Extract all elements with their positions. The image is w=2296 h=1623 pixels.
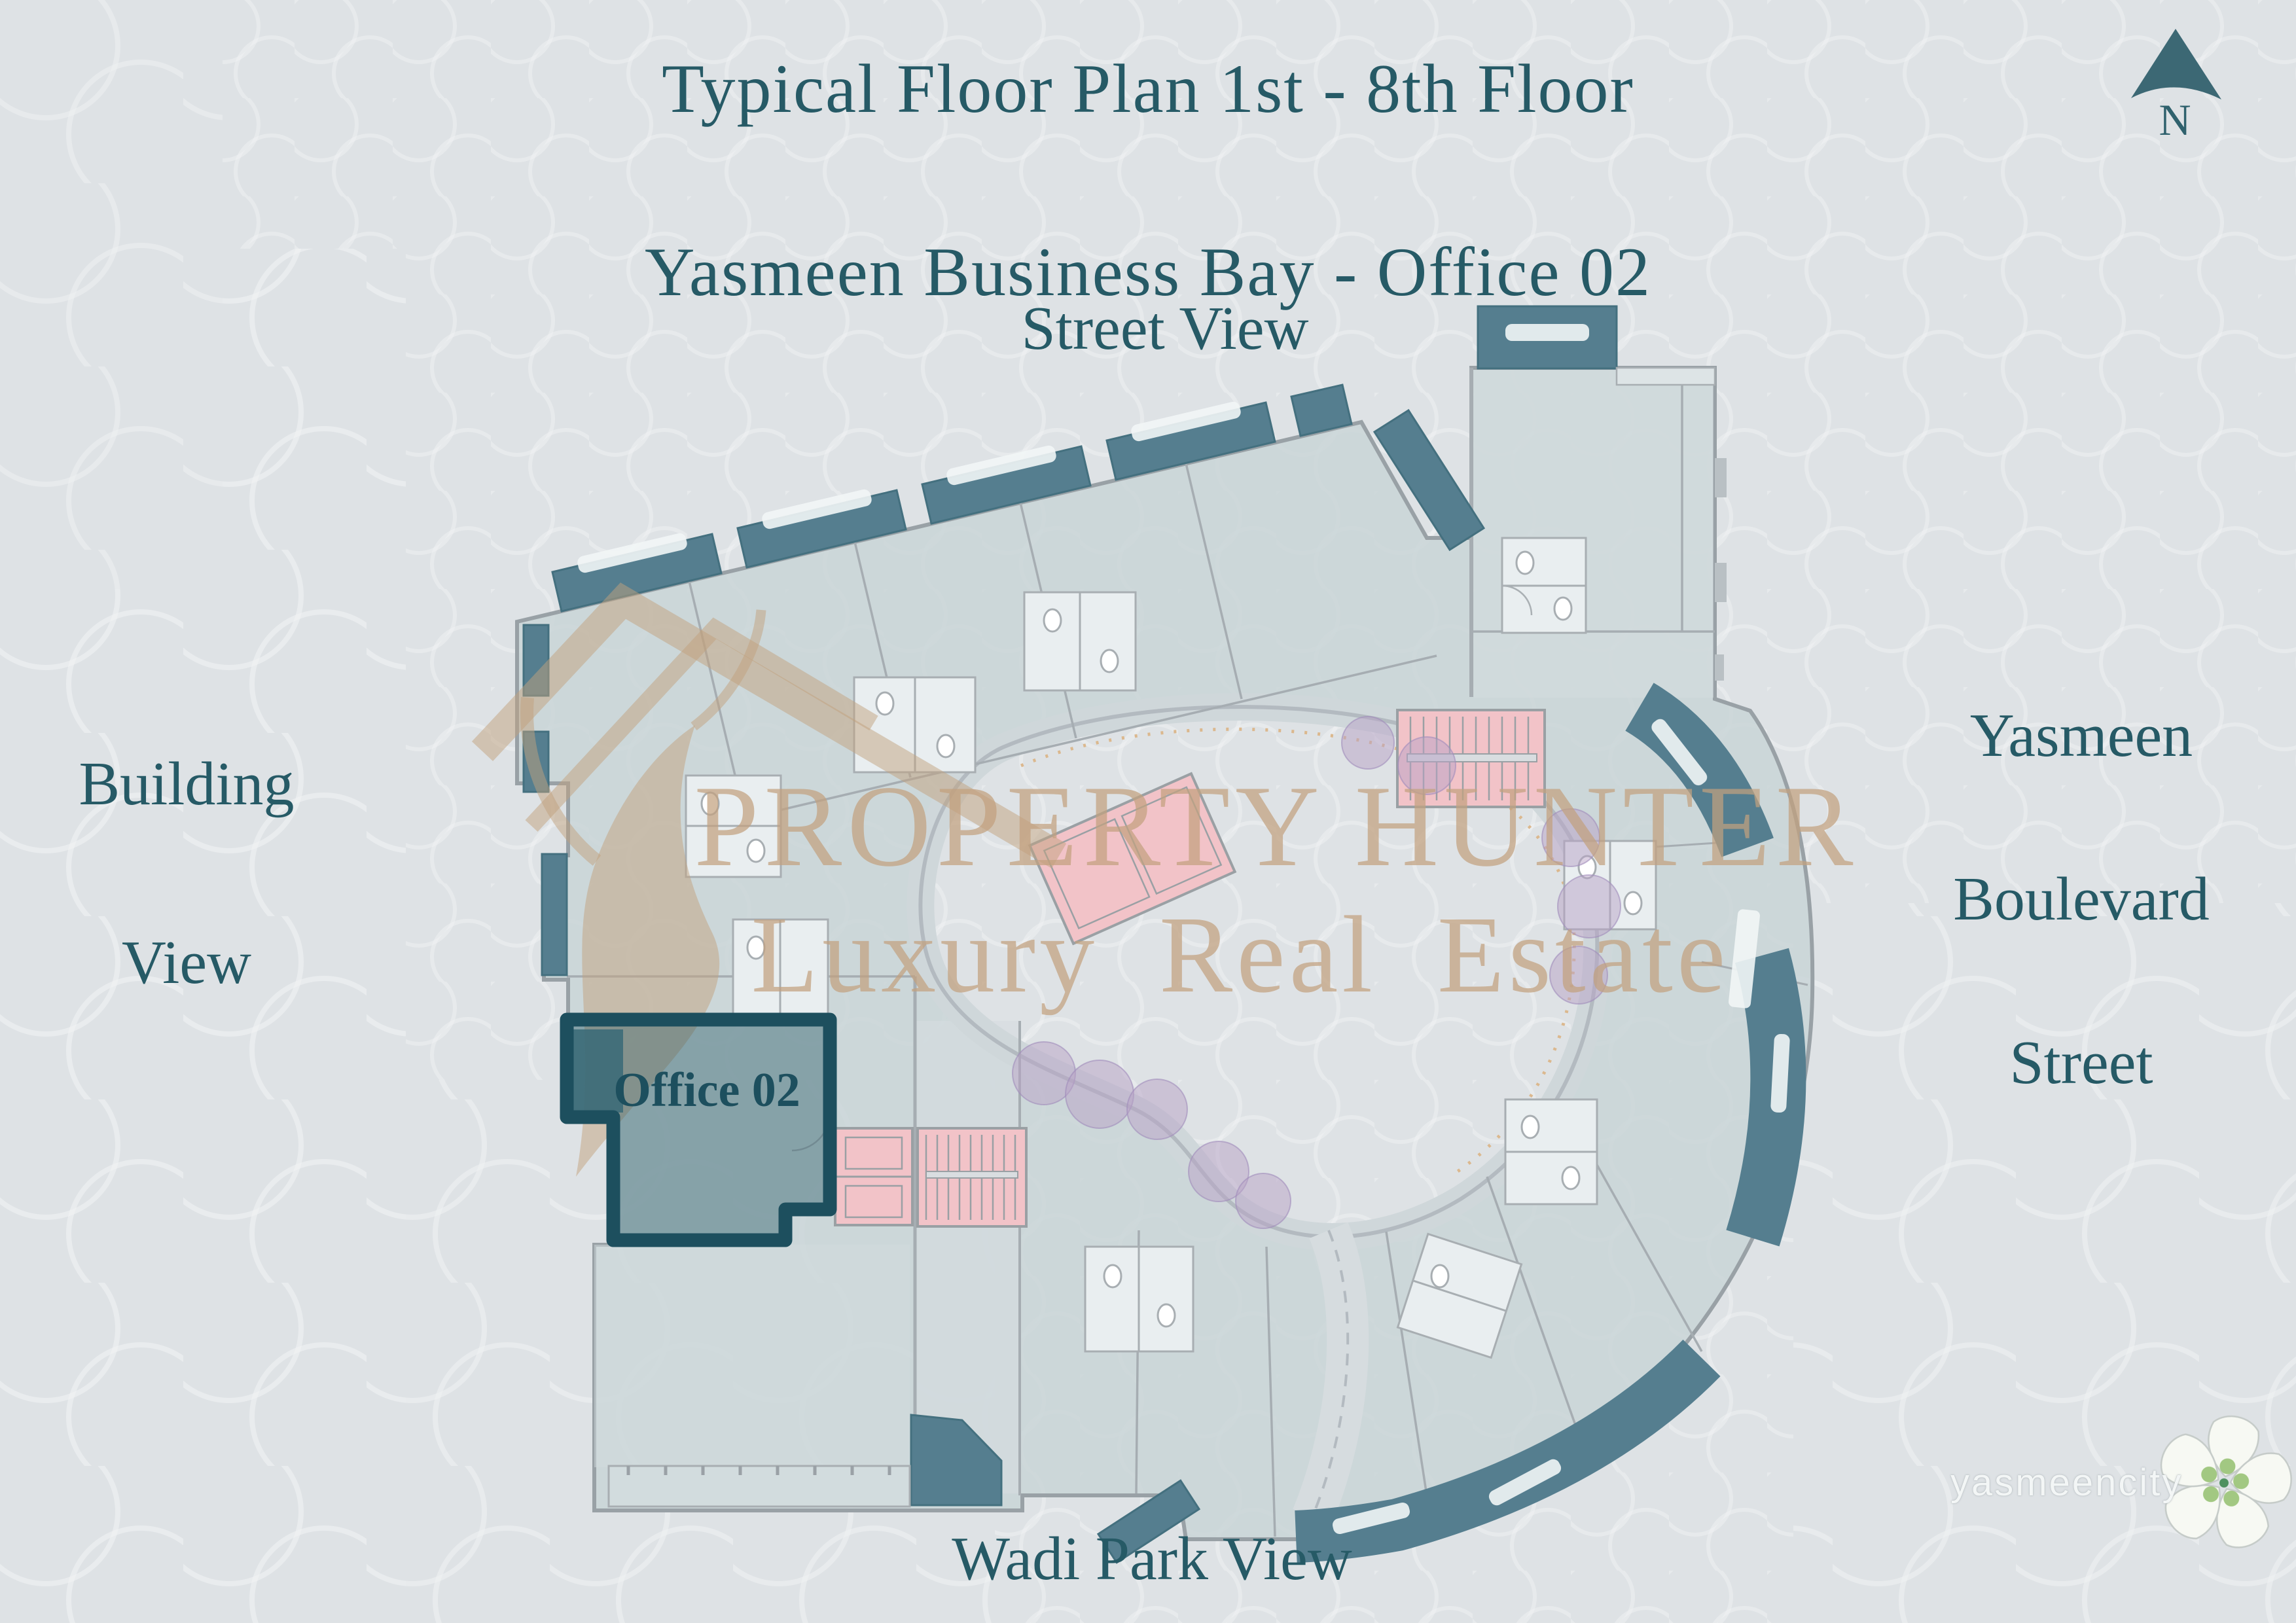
bottom-left-unit <box>594 1245 910 1467</box>
watermark-line1: PROPERTY HUNTER <box>694 761 1858 891</box>
wadi-park-view-label: Wadi Park View <box>890 1524 1414 1594</box>
title-line1: Typical Floor Plan 1st - 8th Floor <box>662 50 1634 127</box>
page-title: Typical Floor Plan 1st - 8th Floor Yasme… <box>0 43 2296 318</box>
compass-label: N <box>2119 94 2231 146</box>
yasmeen-boulevard-label: Yasmeen Boulevard Street <box>1918 695 2245 1104</box>
office-02-label: Office 02 <box>613 1063 800 1117</box>
floor-plan-page: PROPERTY HUNTER Luxury Real Estate Offic… <box>0 0 2296 1623</box>
watermark-line2: Luxury Real Estate <box>751 894 1730 1016</box>
stair-core-south <box>918 1128 1026 1226</box>
street-view-label: Street View <box>903 293 1427 364</box>
elevator-core <box>835 1128 912 1225</box>
building-view-label: Building View <box>39 740 334 1007</box>
yasmeencity-logo-text: yasmeencity <box>1950 1461 2193 1505</box>
top-right-unit <box>1474 370 1713 698</box>
